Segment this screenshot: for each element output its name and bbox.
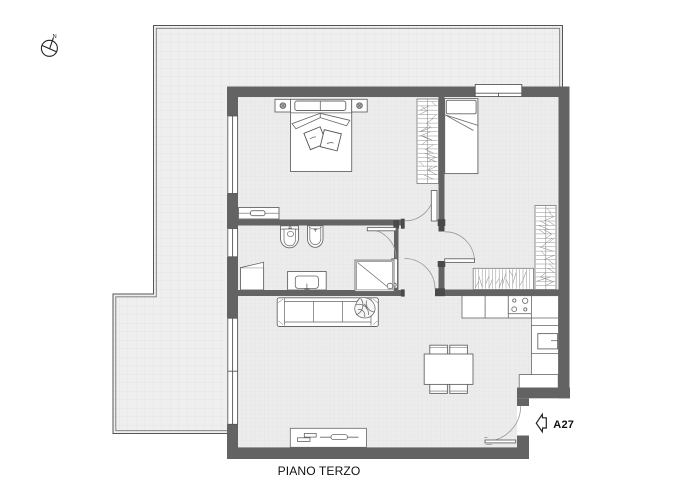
svg-text:A27: A27 [553, 419, 574, 431]
svg-text:N: N [53, 34, 57, 40]
svg-text:PIANO TERZO: PIANO TERZO [278, 464, 361, 478]
